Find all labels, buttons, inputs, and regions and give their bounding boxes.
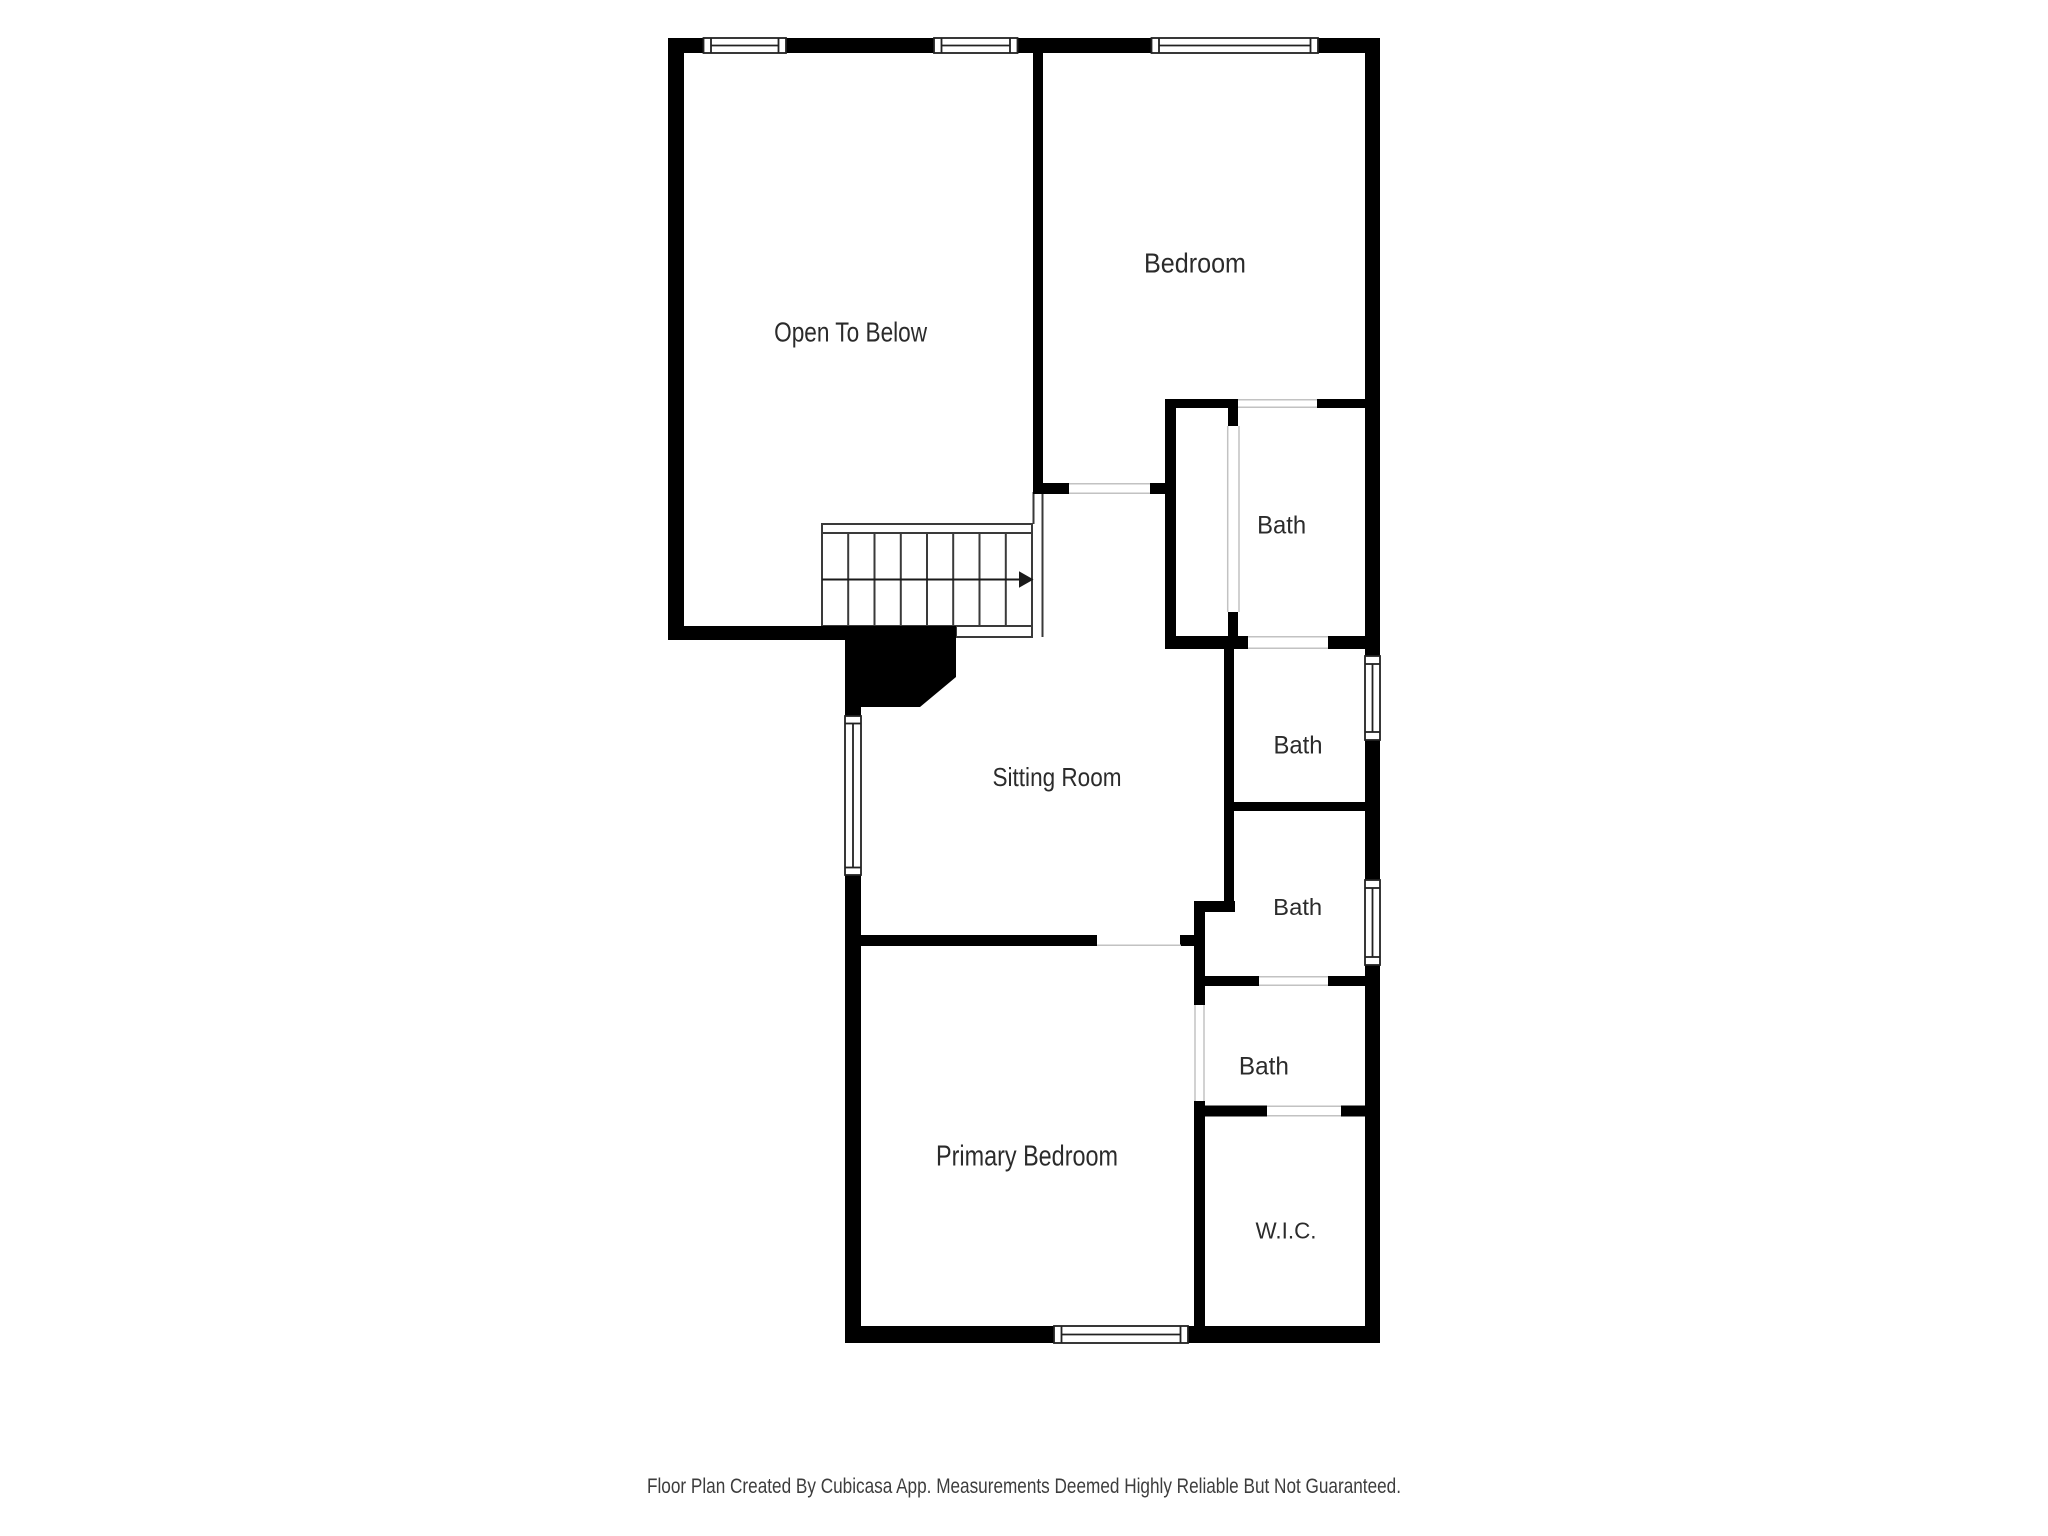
svg-text:Bath: Bath [1273,894,1322,920]
svg-text:Primary Bedroom: Primary Bedroom [936,1140,1118,1172]
svg-text:Open To Below: Open To Below [774,316,928,347]
svg-text:Bath: Bath [1239,1053,1289,1081]
svg-text:Floor Plan Created By Cubicasa: Floor Plan Created By Cubicasa App. Meas… [647,1474,1401,1498]
svg-text:Bath: Bath [1257,512,1306,540]
svg-text:W.I.C.: W.I.C. [1256,1217,1317,1243]
svg-text:Bedroom: Bedroom [1144,248,1246,279]
svg-text:Sitting Room: Sitting Room [993,762,1122,792]
svg-text:Bath: Bath [1274,732,1323,760]
